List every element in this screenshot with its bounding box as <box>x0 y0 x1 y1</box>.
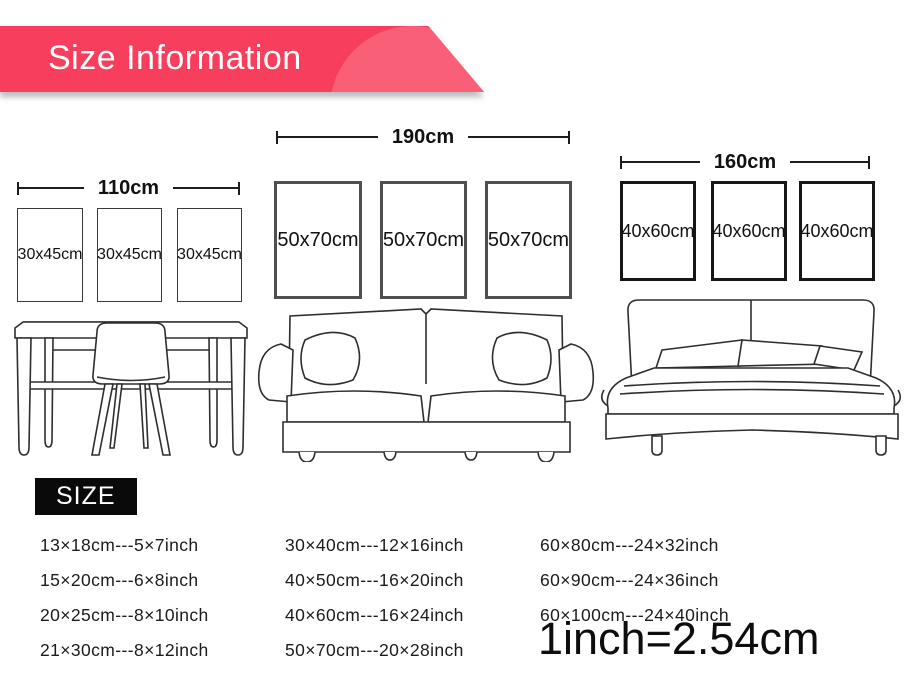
bed-illustration <box>592 296 912 464</box>
dimension-segment <box>790 161 868 163</box>
dimension-tick <box>238 182 240 195</box>
dimension-label: 160cm <box>700 151 790 174</box>
poster-frame-40x60: 40x60cm <box>799 181 875 281</box>
poster-frame-50x70: 50x70cm <box>274 181 362 299</box>
poster-frame-30x45: 30x45cm <box>177 208 242 302</box>
poster-frame-40x60: 40x60cm <box>620 181 696 281</box>
dimension-line-190cm: 190cm <box>276 129 570 145</box>
poster-frame-40x60: 40x60cm <box>711 181 787 281</box>
conversion-cell: 40×60cm---16×24inch <box>285 604 464 626</box>
conversion-cell: 15×20cm---6×8inch <box>40 569 199 591</box>
dimension-segment <box>19 187 84 189</box>
sofa-illustration <box>253 300 600 462</box>
dimension-segment <box>468 136 568 138</box>
page-title: Size Information <box>48 26 302 92</box>
conversion-cell: 21×30cm---8×12inch <box>40 639 209 661</box>
frame-size-label: 30x45cm <box>97 246 162 264</box>
desk-chair-illustration <box>13 320 249 460</box>
inch-conversion-note: 1inch=2.54cm <box>538 615 819 663</box>
dimension-line-160cm: 160cm <box>620 154 870 170</box>
size-heading: SIZE <box>35 478 137 515</box>
poster-frame-30x45: 30x45cm <box>97 208 162 302</box>
frame-size-label: 50x70cm <box>277 229 358 252</box>
conversion-cell: 20×25cm---8×10inch <box>40 604 209 626</box>
title-banner: Size Information <box>0 26 484 92</box>
conversion-cell: 30×40cm---12×16inch <box>285 534 464 556</box>
poster-frame-50x70: 50x70cm <box>485 181 572 299</box>
conversion-cell: 50×70cm---20×28inch <box>285 639 464 661</box>
conversion-cell: 40×50cm---16×20inch <box>285 569 464 591</box>
dimension-tick <box>868 156 870 169</box>
frame-size-label: 40x60cm <box>800 221 873 242</box>
dimension-label: 190cm <box>378 126 468 149</box>
conversion-cell: 60×90cm---24×36inch <box>540 569 719 591</box>
title-banner-ribbon: Size Information <box>0 26 484 92</box>
conversion-cell: 13×18cm---5×7inch <box>40 534 199 556</box>
dimension-label: 110cm <box>84 177 173 200</box>
frame-size-label: 50x70cm <box>488 229 569 252</box>
poster-frame-30x45: 30x45cm <box>17 208 83 302</box>
banner-accent-blob <box>330 26 495 191</box>
dimension-segment <box>278 136 378 138</box>
poster-frame-50x70: 50x70cm <box>380 181 467 299</box>
dimension-segment <box>622 161 700 163</box>
size-information-page: { "banner": { "title": "Size Information… <box>0 0 920 693</box>
frame-size-label: 30x45cm <box>18 246 83 264</box>
dimension-line-110cm: 110cm <box>17 180 240 196</box>
dimension-segment <box>173 187 238 189</box>
frame-size-label: 30x45cm <box>177 246 242 264</box>
conversion-cell: 60×80cm---24×32inch <box>540 534 719 556</box>
frame-size-label: 50x70cm <box>383 229 464 252</box>
frame-size-label: 40x60cm <box>712 221 785 242</box>
frame-size-label: 40x60cm <box>621 221 694 242</box>
dimension-tick <box>568 131 570 144</box>
